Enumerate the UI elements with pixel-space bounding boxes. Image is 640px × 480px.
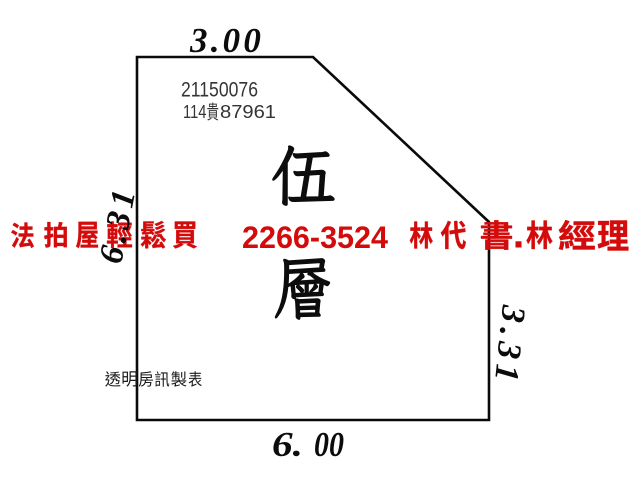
svg-text:3.00: 3.00 [189,21,264,60]
svg-text:21150076: 21150076 [181,78,258,101]
svg-text:87961: 87961 [220,101,276,122]
svg-text:2266-3524: 2266-3524 [242,220,389,255]
svg-text:00: 00 [314,425,344,464]
svg-text:114: 114 [183,101,206,122]
svg-text:6.: 6. [272,425,303,464]
